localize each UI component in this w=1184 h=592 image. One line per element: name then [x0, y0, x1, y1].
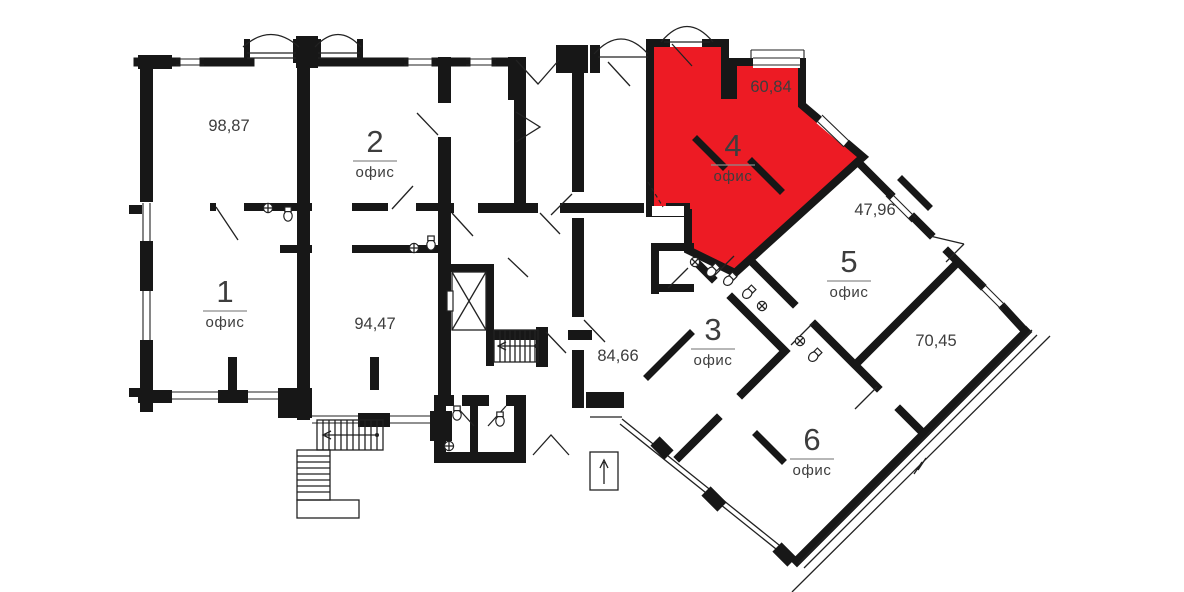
room-number: 6 [803, 422, 820, 457]
room-1-label[interactable]: 1 офис [203, 274, 247, 331]
elevator-icon [447, 272, 486, 330]
room-type: офис [694, 352, 733, 369]
room-2-area: 94,47 [354, 315, 395, 333]
room-3-label[interactable]: 3 офис [691, 312, 735, 369]
room-number: 2 [366, 124, 383, 159]
floor-plan-page: 1 офис 98,87 2 офис 94,47 3 офис 84,66 4… [0, 0, 1184, 592]
walls [129, 36, 1026, 561]
room-number: 1 [216, 274, 233, 309]
room-type: офис [206, 314, 245, 331]
room-6-area: 70,45 [915, 332, 956, 350]
room-number: 5 [840, 244, 857, 279]
room-2-label[interactable]: 2 офис [353, 124, 397, 181]
room-5-label[interactable]: 5 офис [827, 244, 871, 301]
entry-porch [590, 452, 618, 490]
room-6-label[interactable]: 6 офис [790, 422, 834, 479]
room-3-area: 84,66 [597, 347, 638, 365]
room-number: 4 [724, 128, 741, 163]
floor-plan-svg: 1 офис 98,87 2 офис 94,47 3 офис 84,66 4… [0, 0, 1184, 592]
room-5-area: 47,96 [854, 201, 895, 219]
room-type: офис [356, 164, 395, 181]
room-4-area: 60,84 [750, 78, 791, 96]
room-1-area: 98,87 [208, 117, 249, 135]
room-number: 3 [704, 312, 721, 347]
room-type: офис [714, 168, 753, 185]
room-type: офис [830, 284, 869, 301]
external-stairs [297, 420, 383, 518]
room-type: офис [793, 462, 832, 479]
